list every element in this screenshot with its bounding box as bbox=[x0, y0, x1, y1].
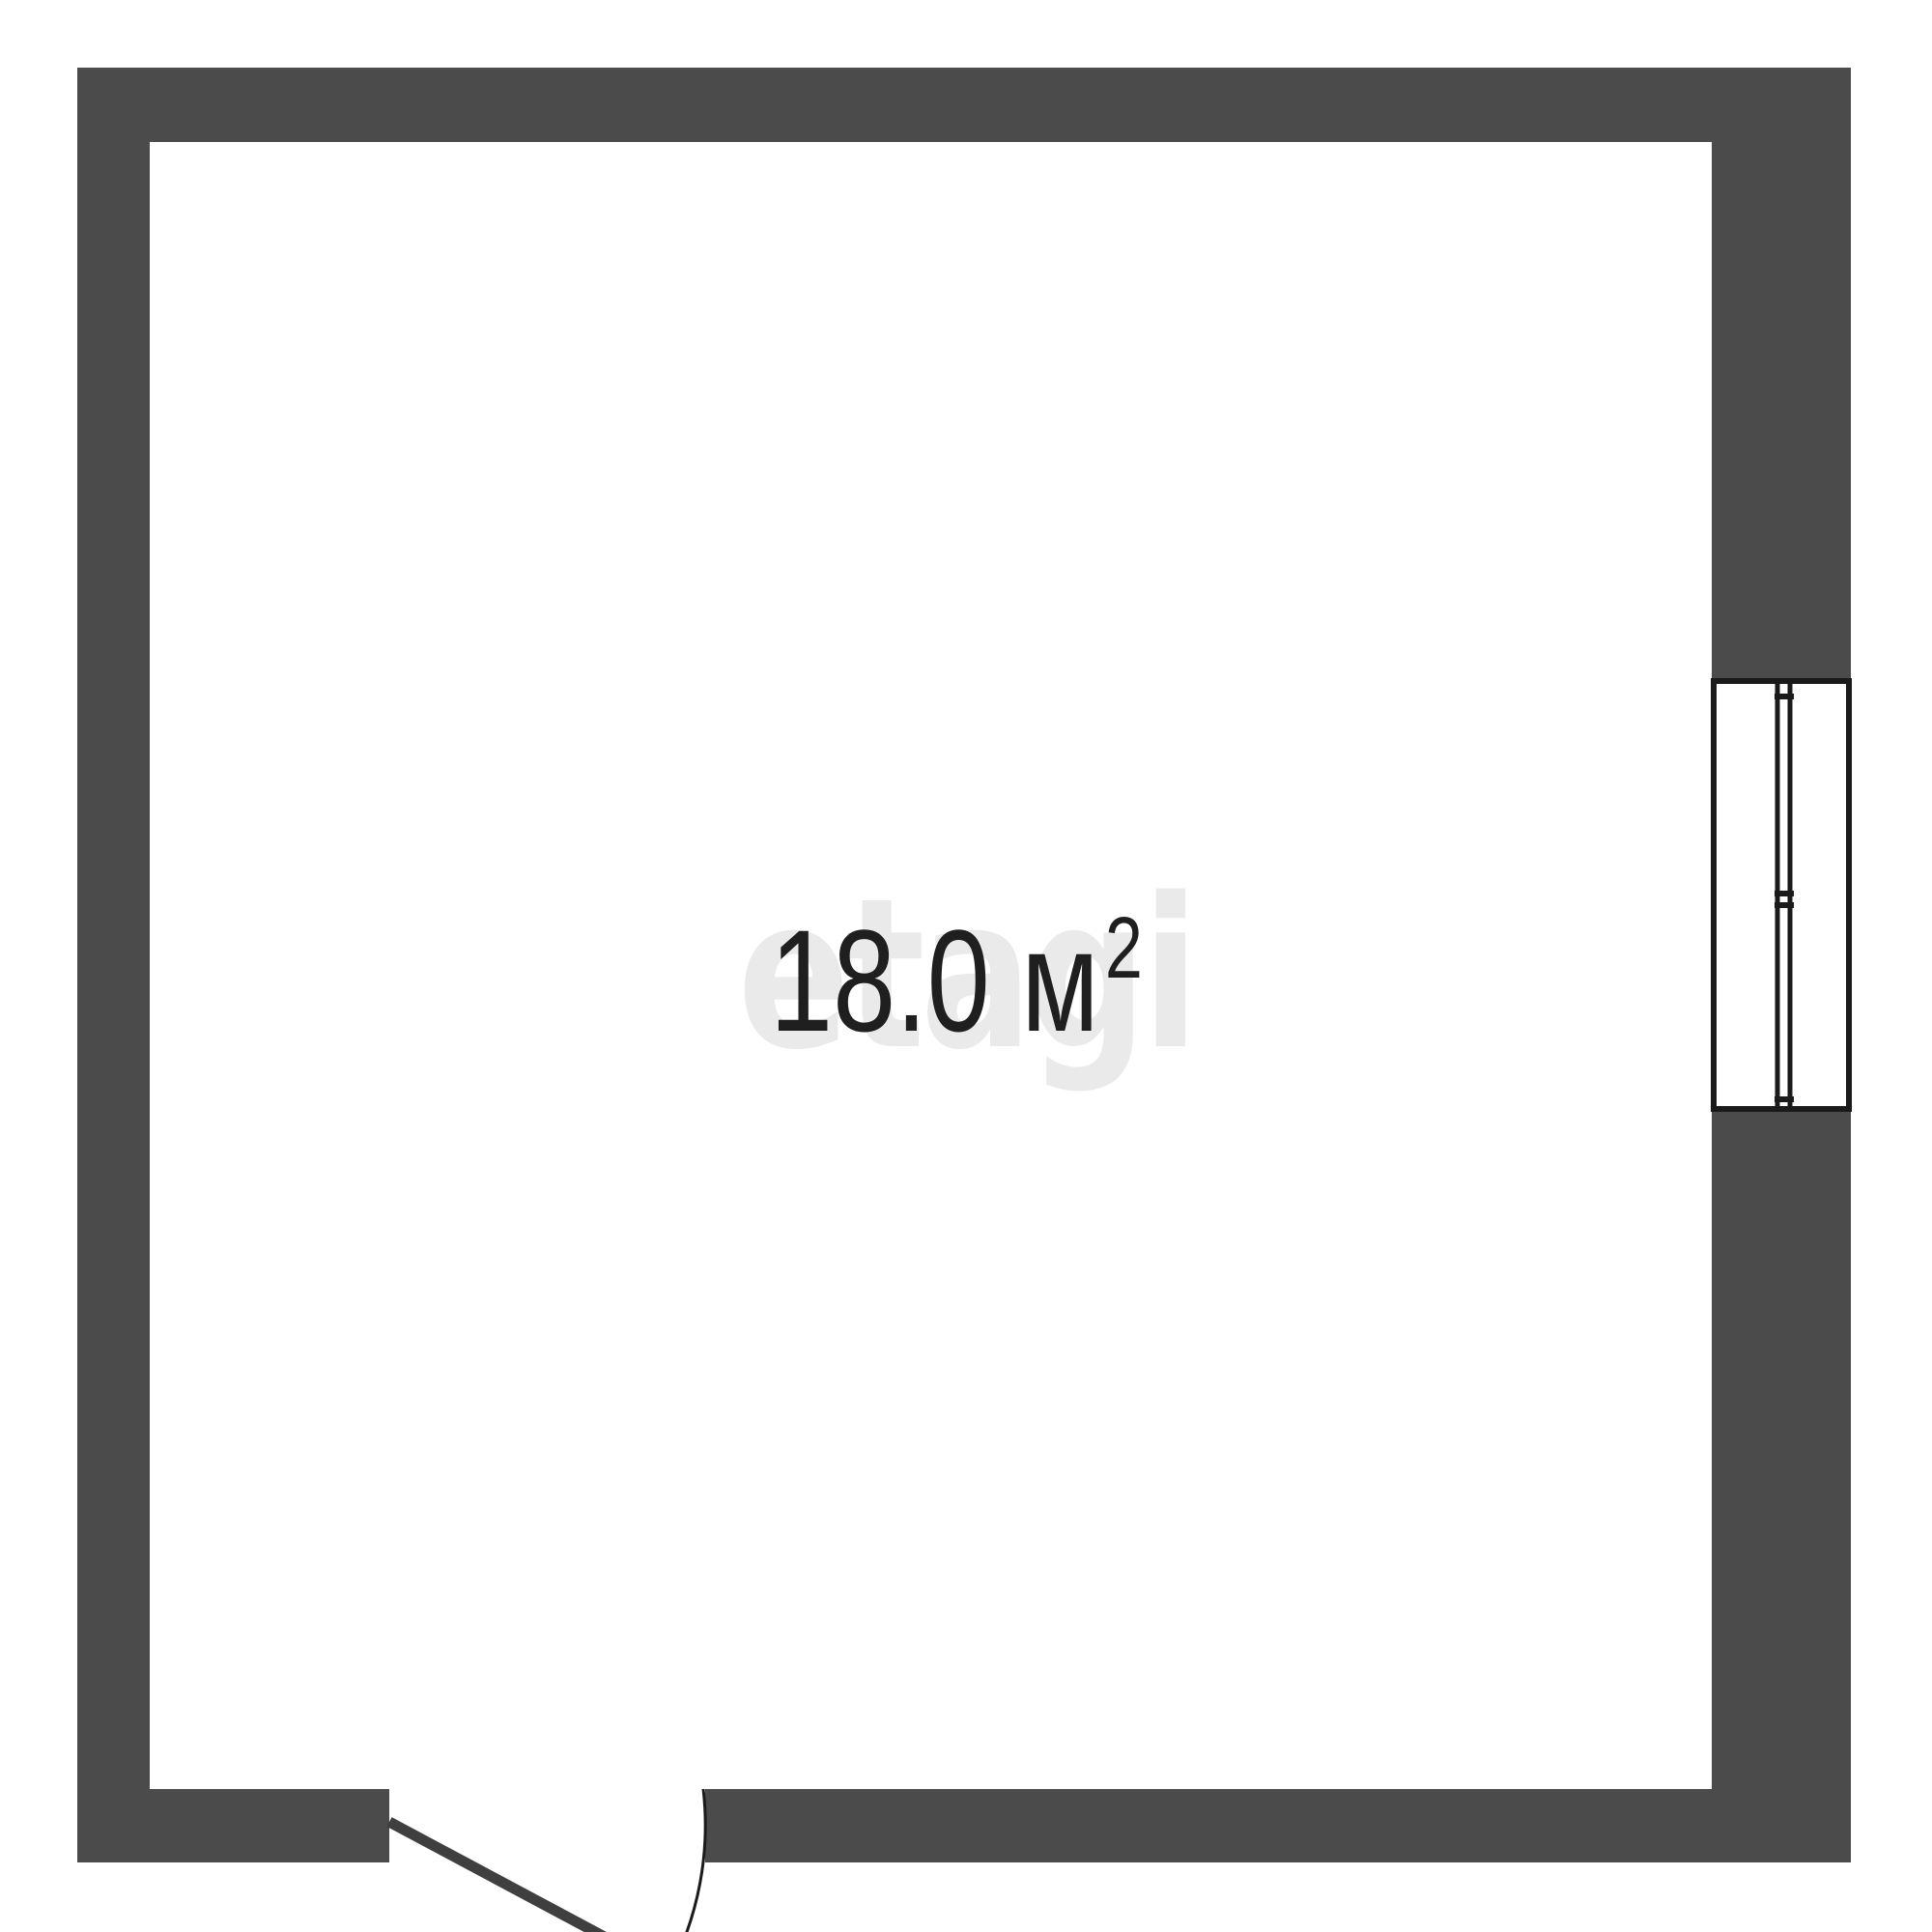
floorplan-canvas: etagi 18.0 м2 bbox=[0, 0, 1932, 1932]
wall-top bbox=[77, 68, 1851, 142]
area-label-group: 18.0 м2 bbox=[770, 899, 1143, 1062]
window-symbol bbox=[1714, 681, 1849, 1109]
wall-bottom-right-segment bbox=[705, 1789, 1851, 1862]
wall-left bbox=[77, 68, 150, 1862]
door-swing-arc bbox=[669, 1789, 705, 1932]
area-label: 18.0 м2 bbox=[770, 899, 1143, 1062]
wall-bottom-left-segment bbox=[77, 1789, 389, 1862]
door-symbol bbox=[389, 1789, 705, 1932]
area-value: 18.0 м bbox=[770, 899, 1099, 1062]
door-leaf bbox=[389, 1822, 669, 1932]
floor-plan-svg: etagi 18.0 м2 bbox=[0, 0, 1932, 1932]
area-superscript: 2 bbox=[1105, 900, 1143, 997]
